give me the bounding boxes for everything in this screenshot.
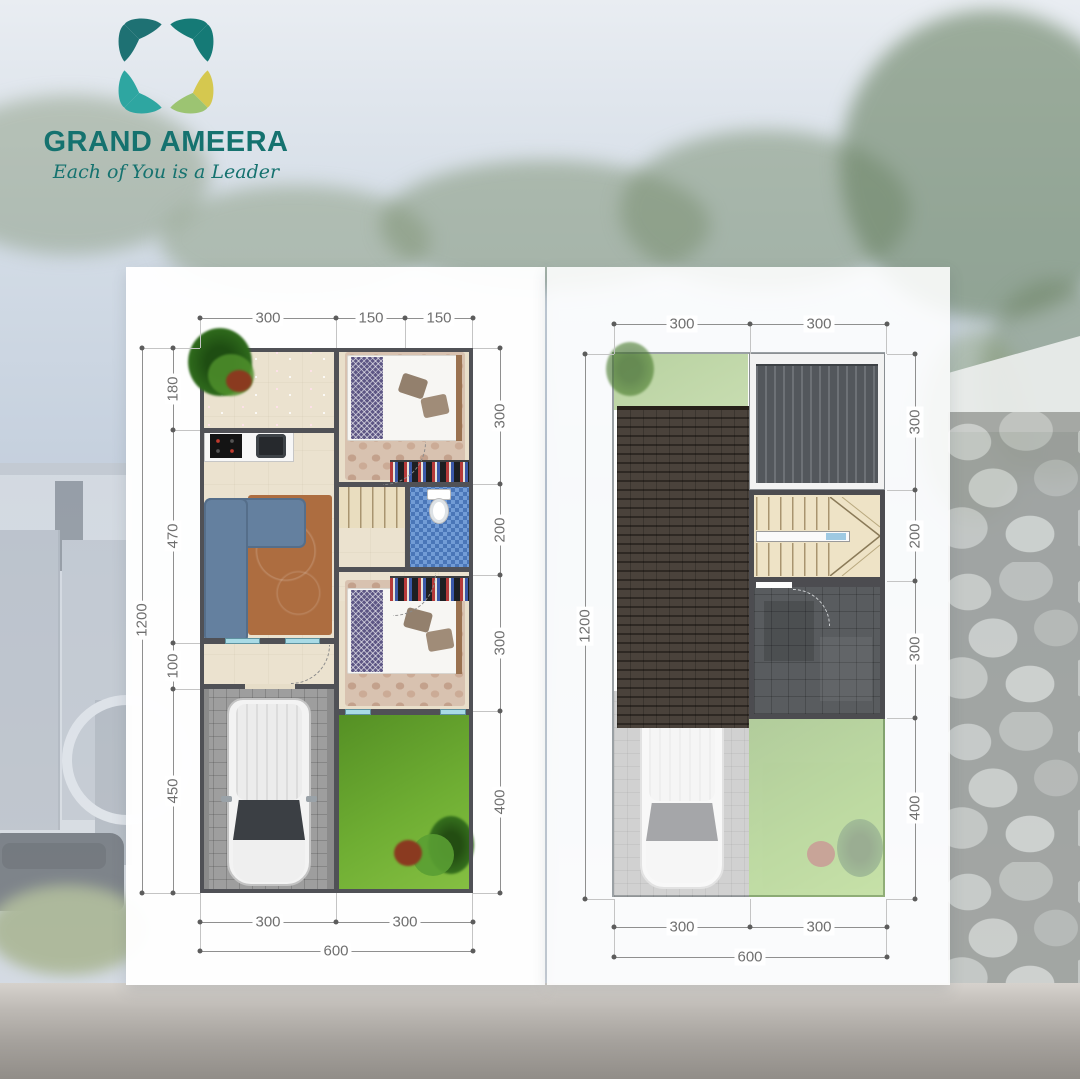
dim-ext [405, 318, 406, 348]
house-panel [0, 530, 60, 830]
background-house [0, 455, 132, 1000]
dim-tick [612, 322, 617, 327]
dim-label: 400 [492, 786, 509, 817]
dim-label: 300 [803, 316, 834, 333]
dim-ext [173, 643, 200, 644]
window [285, 638, 320, 644]
dim-tick [885, 955, 890, 960]
dim-label: 1200 [577, 606, 594, 645]
dim-ext [473, 893, 500, 894]
dim-tick [471, 949, 476, 954]
road [0, 983, 1080, 1079]
dim-ext [887, 354, 915, 355]
dim-label: 300 [907, 406, 924, 437]
dim-label: 600 [734, 949, 765, 966]
ground-floor-plan: 300 150 150 1200 180 470 100 450 [200, 348, 473, 893]
dim-tick [913, 579, 918, 584]
dim-tick [198, 920, 203, 925]
dim-tick [498, 891, 503, 896]
dim-ext [886, 324, 887, 354]
upper-floor-panel: 300 300 1200 300 200 300 400 [547, 267, 950, 985]
dim-ext [585, 354, 614, 355]
dim-tick [403, 316, 408, 321]
door-opening [756, 582, 792, 588]
dim-tick [498, 346, 503, 351]
dim-tick [198, 949, 203, 954]
dim-label: 300 [907, 633, 924, 664]
dim-ext [336, 318, 337, 348]
stair-landing-lines [830, 497, 880, 576]
dim-tick [885, 925, 890, 930]
dim-tick [913, 897, 918, 902]
brand-logo: GRAND AMEERA Each of You is a Leader [30, 14, 302, 183]
window [440, 709, 466, 715]
upper-floor-plan: 300 300 1200 300 200 300 400 [612, 352, 885, 897]
dim-label: 300 [252, 310, 283, 327]
dim-label: 150 [355, 310, 386, 327]
flat-roof-ribbed [756, 364, 878, 483]
dim-tick [171, 891, 176, 896]
dim-tick [334, 316, 339, 321]
dim-tick [612, 955, 617, 960]
dim-tick [198, 316, 203, 321]
window [345, 709, 371, 715]
dim-label: 100 [165, 650, 182, 681]
dim-tick [140, 346, 145, 351]
dim-ext [173, 689, 200, 690]
poster: GRAND AMEERA Each of You is a Leader [0, 0, 1080, 1079]
dim-tick [171, 687, 176, 692]
dim-tick [498, 709, 503, 714]
dim-ext [200, 318, 201, 348]
garage-door-opening [245, 684, 295, 689]
garden-red-shrub [226, 370, 252, 392]
shingle-roof [617, 406, 749, 728]
dim-ext [585, 899, 614, 900]
brand-name: GRAND AMEERA [30, 126, 302, 159]
wall [405, 484, 410, 572]
ground-floor-panel: 300 150 150 1200 180 470 100 450 [126, 267, 545, 985]
dim-tick [583, 897, 588, 902]
dim-ext [472, 318, 473, 348]
dim-tick [171, 428, 176, 433]
dim-tick [471, 316, 476, 321]
dim-tick [171, 641, 176, 646]
dim-ext [614, 324, 615, 354]
dim-tick [748, 925, 753, 930]
dim-ext [887, 581, 915, 582]
dim-ext [750, 899, 751, 927]
car-windshield-faded [646, 803, 718, 841]
tile-patch [820, 637, 872, 701]
upper-terrace-room [749, 582, 885, 719]
dim-label: 200 [907, 520, 924, 551]
dim-label: 300 [666, 316, 697, 333]
dim-tick [583, 352, 588, 357]
wall [200, 428, 336, 433]
dim-label: 450 [165, 775, 182, 806]
dim-label: 300 [252, 914, 283, 931]
dim-label: 300 [492, 627, 509, 658]
garden-red-bush-faded [807, 841, 835, 867]
dim-tick [913, 352, 918, 357]
dim-tick [334, 920, 339, 925]
garden-below-right-faded [749, 713, 885, 897]
upper-stairs [749, 490, 885, 582]
dim-label: 150 [423, 310, 454, 327]
dim-label: 180 [165, 373, 182, 404]
parked-car-window [2, 843, 106, 869]
dim-tick [913, 488, 918, 493]
dim-ext [173, 430, 200, 431]
stone-wall [948, 412, 1080, 987]
dim-ext [750, 324, 751, 354]
dim-tick [748, 322, 753, 327]
dim-ext [887, 718, 915, 719]
dim-ext [887, 899, 915, 900]
dim-tick [913, 716, 918, 721]
dim-tick [498, 573, 503, 578]
car-hood-faded [646, 841, 718, 883]
brand-tagline: Each of You is a Leader [30, 161, 302, 183]
dim-ext [473, 575, 500, 576]
stair-run-up [756, 497, 830, 530]
dim-label: 470 [165, 520, 182, 551]
dim-label: 300 [492, 400, 509, 431]
dim-label: 1200 [134, 600, 151, 639]
dim-tick [498, 482, 503, 487]
dim-ext [473, 711, 500, 712]
dim-ext [887, 490, 915, 491]
window [225, 638, 260, 644]
dim-label: 400 [907, 792, 924, 823]
dim-tick [471, 920, 476, 925]
dim-ext [473, 348, 500, 349]
dim-ext [473, 484, 500, 485]
dim-tick [140, 891, 145, 896]
dim-tick [885, 322, 890, 327]
logo-x-icon [114, 14, 218, 118]
dim-label: 200 [492, 514, 509, 545]
garden-shrub-faded [837, 819, 883, 877]
dim-ext [336, 893, 337, 922]
dim-label: 300 [803, 919, 834, 936]
dim-label: 600 [320, 943, 351, 960]
dim-label: 300 [389, 914, 420, 931]
dim-tick [612, 925, 617, 930]
dim-label: 300 [666, 919, 697, 936]
dim-tick [171, 346, 176, 351]
stair-run-down [756, 543, 830, 576]
